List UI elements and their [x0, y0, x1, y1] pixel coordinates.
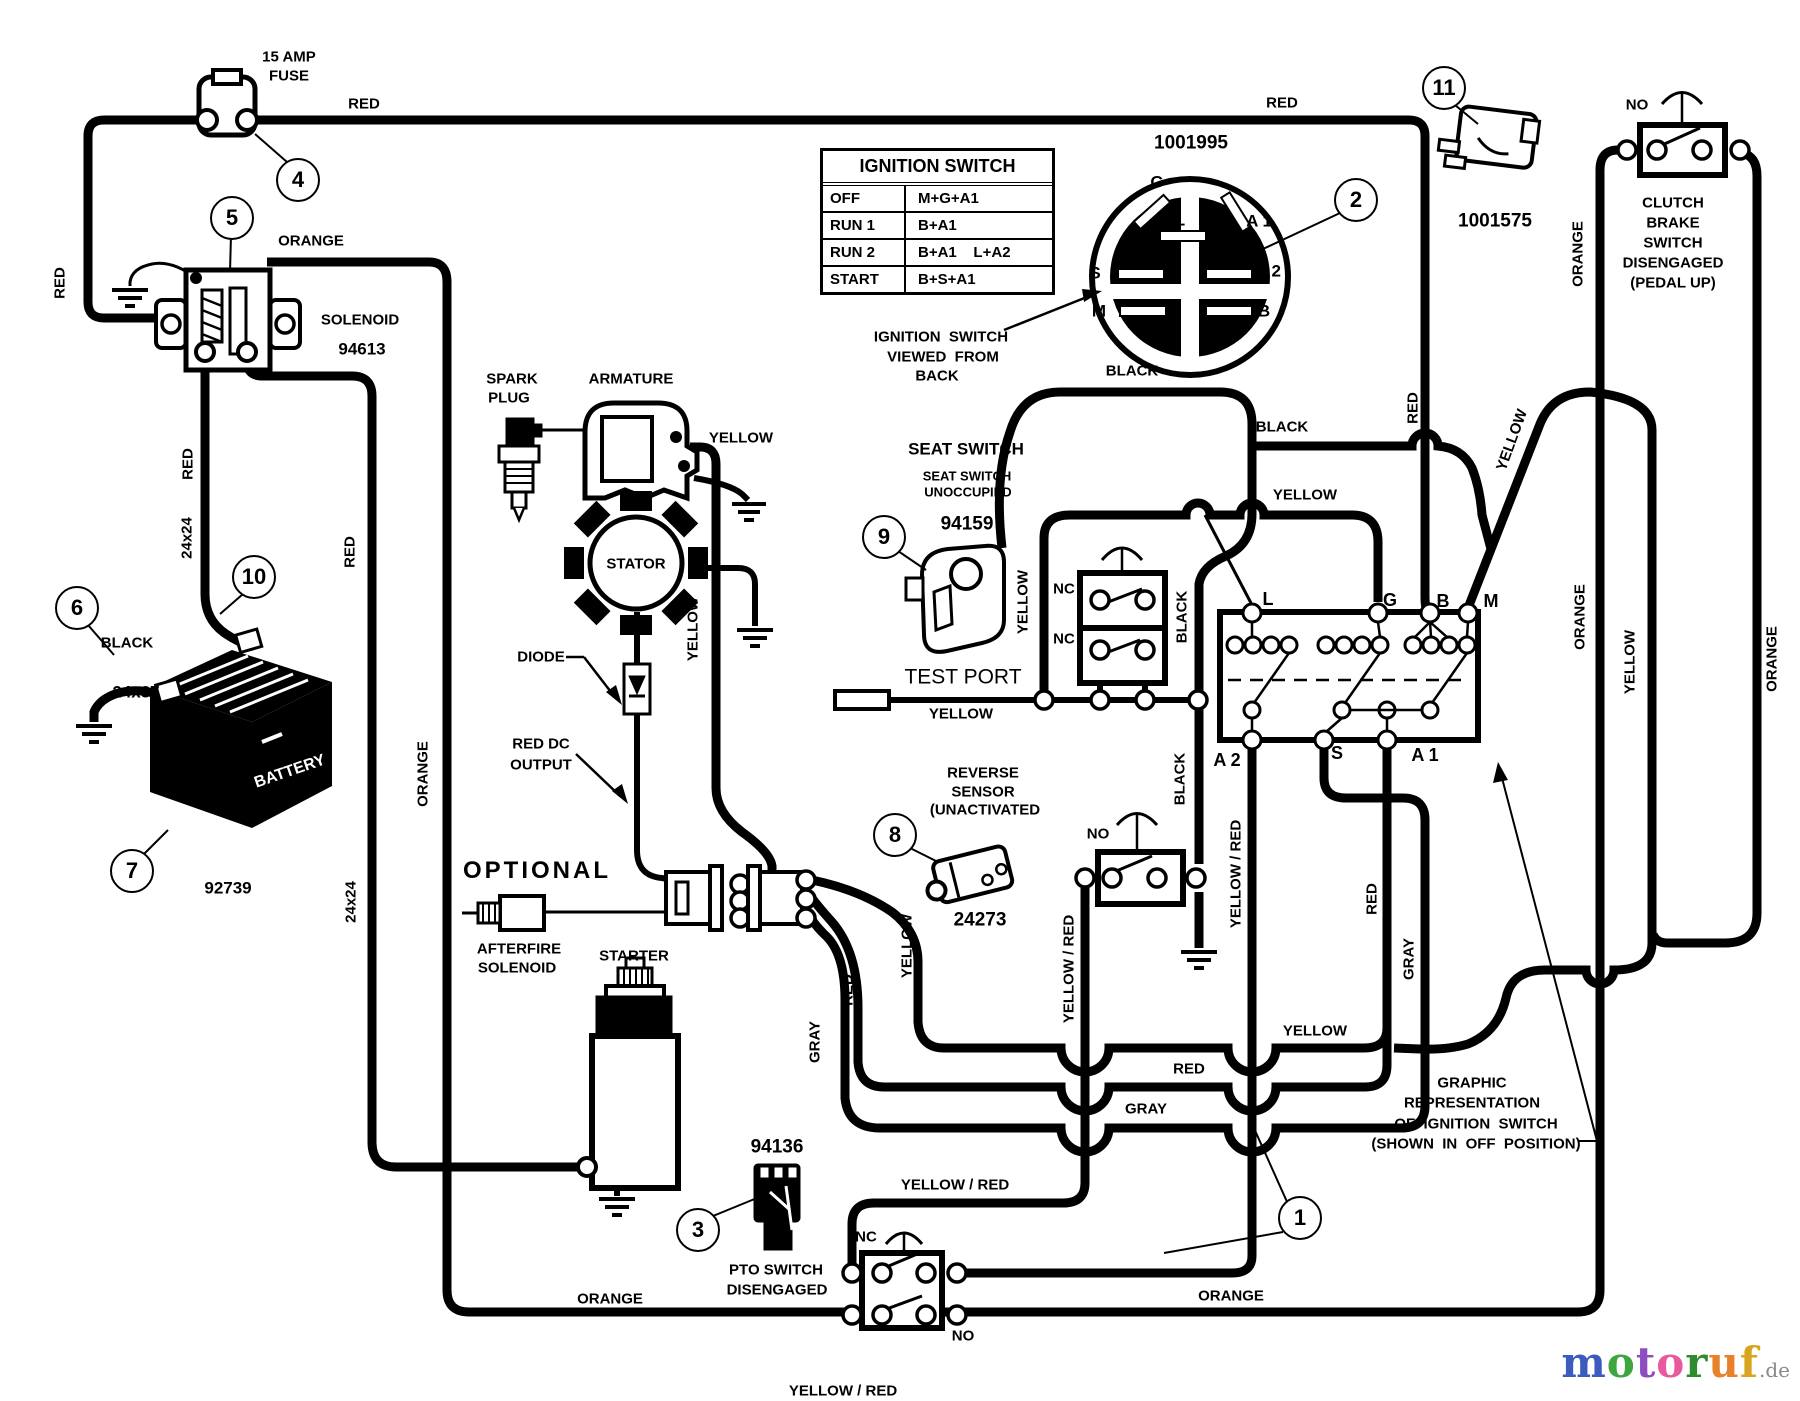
ignition-circuit: B+A1 L+A2 — [906, 240, 1052, 265]
connector-icon — [666, 866, 815, 930]
wire-label-red: RED — [181, 448, 196, 480]
red-dc-2: OUTPUT — [510, 758, 572, 773]
logo-domain-suffix: .de — [1759, 1358, 1790, 1382]
term-L: L — [1263, 590, 1274, 608]
ignition-table-row: RUN 1B+A1 — [823, 211, 1052, 238]
logo-letter: u — [1708, 1338, 1740, 1387]
wire-label-yellow: YELLOW — [929, 707, 993, 722]
logo-letter: m — [1561, 1338, 1606, 1387]
wire-label-orange: ORANGE — [1573, 584, 1588, 650]
logo-letter: f — [1740, 1338, 1759, 1387]
wire-label-black: BLACK — [1106, 364, 1159, 379]
ign-view-2: VIEWED FROM — [887, 350, 999, 365]
battery-part: 92739 — [204, 880, 251, 897]
term-A1: A 1 — [1411, 746, 1438, 764]
callout-5: 5 — [210, 196, 254, 240]
wire-label-orange: ORANGE — [1571, 221, 1586, 287]
armature-icon — [585, 403, 697, 498]
wire — [963, 745, 1252, 1273]
spark-plug-icon — [499, 418, 542, 520]
wire-label-yellow: YELLOW — [686, 597, 701, 661]
wire — [694, 478, 748, 500]
seat-part: 94159 — [941, 515, 994, 534]
wire-label-nc: NC — [1053, 582, 1075, 597]
seat-switch-icon — [906, 546, 1004, 652]
ignition-mode: RUN 1 — [823, 213, 906, 238]
ignition-table-row: RUN 2B+A1 L+A2 — [823, 238, 1052, 265]
clutch-switch-icon — [1437, 104, 1541, 177]
ignition-circuit: B+A1 — [906, 213, 1052, 238]
wire-label-orange: ORANGE — [278, 234, 344, 249]
wire-label-24x24: 24x24 — [180, 517, 195, 559]
clutch-5: (PEDAL UP) — [1630, 276, 1716, 291]
wire-label-red: RED — [841, 974, 856, 1006]
wire-label-yellow: YELLOW — [1273, 488, 1337, 503]
test-port: TEST PORT — [904, 667, 1021, 688]
ground-icon — [76, 726, 112, 742]
motoruf-logo: motoruf.de — [1561, 1338, 1790, 1387]
wire-label-no: NO — [1626, 98, 1649, 113]
wire — [205, 346, 250, 646]
wire-label-orange: ORANGE — [416, 741, 431, 807]
wire-label-red: RED — [343, 536, 358, 568]
ignition-table-row: STARTB+S+A1 — [823, 265, 1052, 292]
face-S: S — [1089, 265, 1100, 282]
wiring-diagram: 15 AMPFUSEREDREDORANGESOLENOID94613REDRE… — [0, 0, 1800, 1401]
reverse-name-2: SENSOR — [951, 785, 1014, 800]
term-M: M — [1484, 592, 1499, 610]
terminal-block — [1220, 604, 1478, 749]
wire-label-24x37: 24x37 — [112, 684, 159, 701]
wire-label-yellow-red: YELLOW / RED — [1062, 915, 1077, 1023]
graphic-2: REPRESENTATION — [1404, 1096, 1540, 1111]
wire-label-nc: NC — [855, 1230, 877, 1245]
face-G: G — [1150, 174, 1163, 191]
starter-icon — [578, 958, 678, 1188]
wire-label-red: RED — [1266, 96, 1298, 111]
logo-letter: t — [1636, 1338, 1656, 1387]
ground-icon — [112, 290, 148, 306]
wire-label-black: BLACK — [1173, 753, 1188, 806]
ignition-table-title: IGNITION SWITCH — [823, 151, 1052, 186]
wire — [1653, 153, 1757, 943]
face-B: B — [1258, 303, 1270, 320]
pto-switch-contacts — [843, 1233, 966, 1328]
callout-9: 9 — [862, 515, 906, 559]
logo-letter: o — [1607, 1338, 1636, 1387]
term-S: S — [1331, 744, 1343, 762]
ignition-circuit: M+G+A1 — [906, 186, 1052, 211]
wire — [852, 888, 1085, 1264]
callout-10: 10 — [232, 555, 276, 599]
term-A2: A 2 — [1213, 751, 1240, 769]
face-A2: A 2 — [1255, 263, 1281, 280]
wire-label-red: RED — [348, 97, 380, 112]
pto-part: 94136 — [751, 1138, 804, 1157]
optional: OPTIONAL — [463, 859, 611, 883]
ignition-mode: START — [823, 267, 906, 292]
fuse-icon — [197, 70, 257, 135]
seat-switch-contacts — [1080, 548, 1165, 683]
wire-label-black: BLACK — [1256, 420, 1309, 435]
pto-name-1: PTO SWITCH — [729, 1263, 823, 1278]
seat-name: SEAT SWITCH — [908, 441, 1024, 458]
wire — [637, 714, 672, 880]
fuse-rating-1: 15 AMP — [262, 50, 316, 65]
logo-letter: o — [1656, 1338, 1685, 1387]
starter-name: STARTER — [599, 949, 669, 964]
reverse-name-3: (UNACTIVATED — [930, 803, 1040, 818]
pto-name-2: DISENGAGED — [727, 1283, 828, 1298]
wire-label-gray: GRAY — [1402, 938, 1417, 980]
thick-wires — [88, 120, 1757, 1312]
face-M: M — [1092, 303, 1106, 320]
wire-label-nc: NC — [1053, 632, 1075, 647]
pto-connector-icon — [754, 1164, 800, 1250]
ground-icon — [732, 504, 766, 520]
wire-label-black: BLACK — [1175, 591, 1190, 644]
ignition-part: 1001995 — [1154, 134, 1228, 153]
graphic-1: GRAPHIC — [1437, 1076, 1506, 1091]
wire-label-yellow: YELLOW — [1623, 630, 1638, 694]
wire-label-yellow: YELLOW — [1283, 1024, 1347, 1039]
diode-name: DIODE — [517, 650, 565, 665]
wire-label-gray: GRAY — [1125, 1102, 1167, 1117]
wire-label-yellow-red: YELLOW / RED — [1229, 820, 1244, 928]
wire-label-yellow-red: YELLOW / RED — [789, 1384, 897, 1399]
reverse-part: 24273 — [954, 911, 1007, 930]
clutch-1: CLUTCH — [1642, 196, 1704, 211]
afterfire-1: AFTERFIRE — [477, 942, 561, 957]
diode-icon — [624, 664, 650, 714]
wire-label-gray: GRAY — [808, 1021, 823, 1063]
solenoid-part: 94613 — [338, 341, 385, 358]
battery-icon — [150, 629, 332, 828]
ignition-circuit: B+S+A1 — [906, 267, 1052, 292]
wire-label-yellow-red: YELLOW / RED — [901, 1178, 1009, 1193]
callout-2: 2 — [1334, 178, 1378, 222]
ground-icon — [737, 630, 773, 646]
wire-label-orange: ORANGE — [577, 1292, 643, 1307]
wire-label-red: RED — [53, 267, 68, 299]
clutch-4: DISENGAGED — [1623, 256, 1724, 271]
wire-label-no: NO — [1087, 827, 1110, 842]
clutch-3: SWITCH — [1643, 236, 1702, 251]
red-dc-1: RED DC — [512, 737, 570, 752]
ignition-mode: OFF — [823, 186, 906, 211]
graphic-3: OF IGNITION SWITCH — [1394, 1117, 1557, 1132]
wire-label-yellow: YELLOW — [709, 431, 773, 446]
spark-plug-name-1: SPARK — [486, 372, 537, 387]
ignition-table-row: OFFM+G+A1 — [823, 186, 1052, 211]
callout-1: 1 — [1278, 1196, 1322, 1240]
wire-label-24x24: 24x24 — [344, 881, 359, 923]
face-L: L — [1175, 212, 1185, 229]
armature-name: ARMATURE — [589, 372, 674, 387]
stator-name: STATOR — [606, 557, 665, 572]
spark-plug-name-2: PLUG — [488, 391, 530, 406]
callout-8: 8 — [873, 813, 917, 857]
afterfire-2: SOLENOID — [478, 961, 556, 976]
wire-label-orange: ORANGE — [1198, 1289, 1264, 1304]
clutch-part: 1001575 — [1458, 212, 1532, 231]
seat-state-2: UNOCCUPIED — [924, 486, 1011, 499]
wire-label-orange: ORANGE — [1765, 626, 1780, 692]
term-G: G — [1383, 591, 1397, 609]
ground-icon — [599, 1199, 635, 1215]
fuse-rating-2: FUSE — [269, 69, 309, 84]
seat-state-1: SEAT SWITCH — [923, 470, 1012, 483]
wire-label-yellow: YELLOW — [1016, 570, 1031, 634]
ignition-switch-table: IGNITION SWITCH OFFM+G+A1RUN 1B+A1RUN 2B… — [820, 148, 1055, 295]
wire-label-yellow: YELLOW — [900, 914, 915, 978]
solenoid-name: SOLENOID — [321, 313, 399, 328]
wire-label-black: BLACK — [101, 636, 154, 651]
term-B: B — [1437, 592, 1450, 610]
reverse-name-1: REVERSE — [947, 766, 1019, 781]
callout-6: 6 — [55, 586, 99, 630]
callout-11: 11 — [1422, 66, 1466, 110]
face-A1: A 1 — [1246, 213, 1272, 230]
logo-letter: r — [1685, 1338, 1708, 1387]
clutch-2: BRAKE — [1646, 216, 1699, 231]
wire-label-red: RED — [1406, 392, 1421, 424]
callout-4: 4 — [276, 158, 320, 202]
wire-label-red: RED — [1365, 883, 1380, 915]
callout-7: 7 — [110, 849, 154, 893]
ground-icon — [1181, 952, 1217, 968]
graphic-4: (SHOWN IN OFF POSITION) — [1371, 1137, 1580, 1152]
afterfire-solenoid-icon — [478, 896, 544, 930]
wire-label-no: NO — [952, 1329, 975, 1344]
ign-view-1: IGNITION SWITCH — [874, 330, 1008, 345]
ign-view-3: BACK — [915, 369, 958, 384]
wire-label-red: RED — [1173, 1062, 1205, 1077]
ignition-mode: RUN 2 — [823, 240, 906, 265]
reverse-sensor-icon — [921, 845, 1014, 906]
solenoid-icon — [156, 270, 300, 370]
callout-3: 3 — [676, 1208, 720, 1252]
